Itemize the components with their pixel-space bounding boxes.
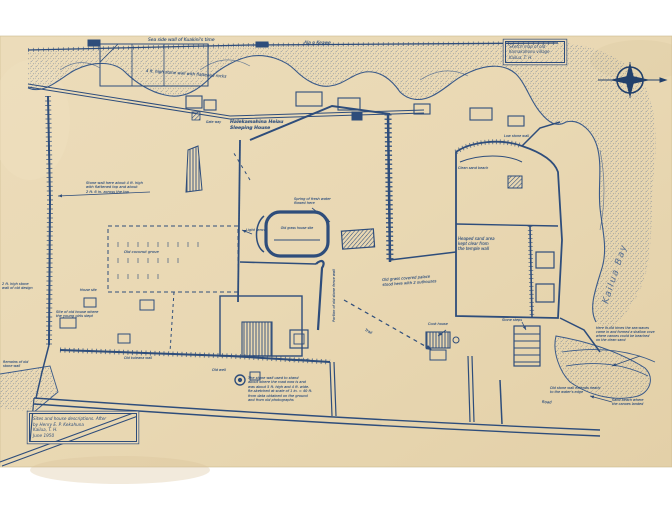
annotation-steps: Stone steps: [502, 318, 522, 322]
annotation-oval-house: Old grass house site: [272, 226, 322, 230]
annotation-pathway: Old pathway: [288, 358, 309, 362]
annotation-br-beach: Sand beach where the canoes landed: [612, 398, 644, 407]
annotation-house-site: House site: [80, 288, 97, 292]
annotation-right-note: Here in old times the sea waves came in …: [596, 326, 655, 342]
title-block-top-right: Sketch map of old Kamakahonu village Kai…: [505, 41, 565, 63]
annotation-fence-vertical: Portion of old stone fence wall: [332, 269, 336, 322]
scanned-map-page: Sketch map of old Kamakahonu village Kai…: [0, 0, 672, 510]
annotation-top-road-left: Sea side wall of Kuakini's time: [148, 38, 215, 44]
annotation-bl-shore: Remains of old stone wall: [3, 360, 28, 369]
annotation-left-edge-note: 2 ft. high stone wall of old design: [2, 282, 33, 291]
annotation-bottom-note: The stone wall used to stand about where…: [248, 376, 312, 402]
annotation-sand-beach: Clean sand beach: [458, 166, 488, 170]
annotation-spring: Spring of fresh water flowed here: [294, 197, 331, 206]
annotation-grove: Old coconut grove: [124, 250, 159, 255]
title-block-bottom-left: Sites and house descriptions. After by H…: [29, 413, 137, 442]
annotation-gateway: Gate way: [206, 120, 221, 124]
annotation-low-wall: Low stone wall: [504, 134, 529, 138]
annotation-cook-house: Cook house: [428, 322, 448, 326]
annotation-girls-house: Site of old house where the young girls …: [56, 310, 98, 319]
annotation-kuleana: Old kuleana wall: [124, 356, 152, 360]
annotation-top-road-right: Ala o Keawe: [304, 41, 331, 47]
annotation-br-wall-note: Old stone wall extends nearly to the wat…: [550, 386, 600, 395]
annotation-heiau: Halekamahina Heiau Sleeping House: [230, 120, 283, 131]
annotation-light-fence: Light fence: [246, 228, 266, 232]
annotation-well: Old well: [212, 368, 226, 372]
annotation-sand-pile: Heaped sand area kept clear from the tem…: [458, 236, 495, 251]
annotation-left-wall-note: Stone wall here about 4 ft. high with fl…: [86, 181, 143, 194]
annotation-road: Road: [542, 400, 552, 405]
